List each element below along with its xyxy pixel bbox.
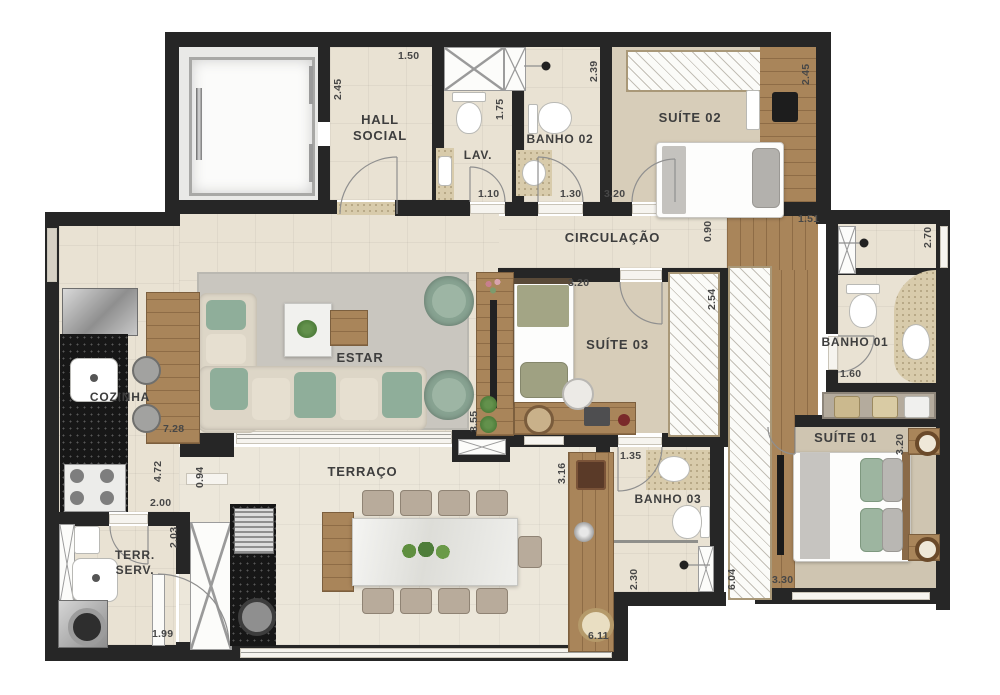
window-banho01 [940,226,948,268]
dim-terraco-height: 3.16 [556,463,568,484]
plant-console [480,416,497,433]
elevator-door-leaf [309,144,313,182]
wall-segment [816,210,950,224]
wall-segment [45,212,180,226]
fridge [62,288,138,336]
stove-burner [100,491,114,505]
sofa-cushion [210,368,248,410]
plant-console [480,396,497,413]
desk-item-suite03 [618,414,630,426]
duct-x-panel [838,226,856,274]
closet-clothes [834,396,860,418]
armchair-seat [432,378,466,412]
sideboard-kettle [574,522,594,542]
armchair-seat [432,284,466,318]
label-cozinha: COZINHA [78,390,162,405]
stool [132,356,161,385]
dim-terr-serv-width: 2.00 [150,497,171,509]
sofa-cushion [294,372,336,418]
dim-banho02-height: 2.39 [588,61,600,82]
basin-banho03 [658,456,690,482]
threshold-terr-serv [109,514,148,524]
dining-chair [362,588,394,614]
tv-suite02 [772,92,798,122]
wall-segment [505,202,538,216]
wall-segment [318,46,330,122]
pillow-suite03 [520,362,568,398]
dining-chair [476,588,508,614]
wardrobe-suite02 [626,50,764,92]
stool [132,404,161,433]
wall-segment [165,32,830,47]
toilet-tank-banho01 [846,284,880,294]
dim-suite03-width: 3.20 [568,277,589,289]
dining-chair [362,490,394,516]
wall-segment [45,512,109,526]
dim-suite01-width: 3.30 [772,574,793,586]
window-suite01 [792,592,930,600]
wall-segment [165,200,337,214]
closet-clothes [872,396,898,418]
dim-banho02-width: 1.30 [560,188,581,200]
dim-passage: 0.94 [194,467,206,488]
mirror-suite03 [524,405,554,435]
headboard-suite03 [514,278,572,284]
duct-x-panel [698,546,714,592]
washer-door [68,608,106,646]
stove-burner [100,469,114,483]
label-estar: ESTAR [325,350,395,366]
stove-burner [70,491,84,505]
wall-segment [148,512,190,526]
basin-banho02 [522,160,546,186]
dim-corridor-right: 1.51 [798,213,819,225]
floor-plan: HALL SOCIAL LAV. BANHO 02 SUÍTE 02 CIRCU… [0,0,1000,695]
desk-chair-suite03 [562,378,594,410]
bbq-sink [238,598,276,636]
pillow-green [860,458,884,502]
laptop-suite03 [584,407,610,426]
dining-chair [476,490,508,516]
wall-segment [600,46,612,202]
wall-segment [816,32,831,224]
dining-chair [400,490,432,516]
dining-table-head [322,512,354,592]
plant-coffee-table [297,320,317,338]
dim-estar-depth: 3.55 [468,411,480,432]
side-table [330,310,368,346]
tv-estar [490,300,497,408]
pillow-gray [882,508,903,552]
dining-chair [518,536,542,568]
duct-x-panel [504,47,526,91]
label-lav: LAV. [455,148,501,163]
toilet-bowl-banho03 [672,505,702,539]
elevator-handrail [196,88,202,160]
pillow-suite02 [752,148,780,208]
bbq-grill [234,508,274,554]
threshold-banho02 [538,204,583,214]
dim-suite02-width: 3.20 [604,188,625,200]
basin-banho01 [902,324,930,360]
bed-runner-suite02 [662,146,686,214]
dim-estar-width: 7.28 [163,423,184,435]
dim-closet-height: 6.04 [726,569,738,590]
dim-hall-height: 2.45 [332,79,344,100]
dim-hall-width: 1.50 [398,50,419,62]
dim-terr-serv-depth: 1.99 [152,628,173,640]
panel-suite02 [746,90,760,130]
dim-lav-height: 1.75 [494,99,506,120]
lamp [915,431,940,456]
dining-chair [400,588,432,614]
bed-runner-suite01 [800,453,830,559]
dim-wardrobe-suite03: 2.54 [706,289,718,310]
dim-banho01-width: 1.60 [840,368,861,380]
label-suite03: SUÍTE 03 [570,337,665,353]
threshold-passage [186,473,228,485]
pillow-gray [882,458,903,502]
label-terraco: TERRAÇO [320,464,405,480]
threshold-suite03 [620,270,662,280]
toilet-bowl-banho01 [849,294,877,328]
label-hall-social: HALL SOCIAL [330,112,430,145]
dim-banho03-height: 2.30 [628,569,640,590]
threshold-banho03 [618,437,662,445]
dim-terr-serv-height: 2.03 [168,527,180,548]
dim-lav-width: 1.10 [478,188,499,200]
wall-segment [826,370,838,383]
dim-suite02-height: 2.45 [800,64,812,85]
terraco-railing [240,648,612,658]
threshold-lav [470,204,505,214]
wall-segment [395,200,470,216]
toilet-bowl-banho02 [538,102,572,134]
dim-banho01-height: 2.70 [922,227,934,248]
elevator-cab [189,57,315,196]
dining-chair [438,588,470,614]
sideboard-tray [576,460,606,490]
blanket-suite03 [517,285,569,327]
label-circulacao: CIRCULAÇÃO [555,230,670,246]
entrance-doormat [337,202,395,215]
window-cozinha [47,228,57,282]
stove-burner [70,469,84,483]
duct-x-panel [190,522,232,650]
sofa-cushion [252,378,290,420]
wall-segment [176,642,190,661]
wall-segment [826,224,838,334]
dim-suite01-height: 3.20 [894,434,906,455]
dim-terraco-width: 6.11 [588,630,609,642]
sink-lav [438,156,452,186]
label-banho01: BANHO 01 [810,335,900,350]
tv-panel-suite01 [777,455,784,555]
sliding-door-estar-terraco [236,431,452,444]
shower-glass-banho03 [612,540,698,543]
sofa-cushion [206,334,246,364]
label-banho02: BANHO 02 [512,132,608,147]
dining-chair [438,490,470,516]
duct-x-panel [444,47,504,91]
table-centerpiece-plant [398,542,454,560]
sofa-cushion [340,378,378,420]
label-suite01: SUÍTE 01 [798,430,893,446]
label-banho03: BANHO 03 [622,492,714,507]
toilet-tank-lav [452,92,486,102]
label-terr-serv: TERR. SERV. [95,548,175,578]
closet-corridor [728,266,772,600]
wall-segment [318,146,330,202]
sofa-cushion [206,300,246,330]
dim-circulacao-height: 0.90 [702,221,714,242]
elevator-door-leaf [309,66,313,104]
kitchen-faucet [90,374,98,382]
toilet-bowl-lav [456,102,482,134]
flower-decoration [482,276,504,296]
label-suite02: SUÍTE 02 [640,110,740,126]
wall-segment [165,32,180,214]
wall-segment [583,202,632,216]
window-x-panel [458,439,506,455]
lamp [915,537,940,562]
sofa-cushion [382,372,422,418]
dim-banho03-width: 1.35 [620,450,641,462]
pillow-green [860,508,884,552]
dim-estar-height: 4.72 [152,461,164,482]
toilet-tank-banho02 [528,104,538,134]
window-sill [524,436,564,445]
closet-clothes [904,396,930,418]
